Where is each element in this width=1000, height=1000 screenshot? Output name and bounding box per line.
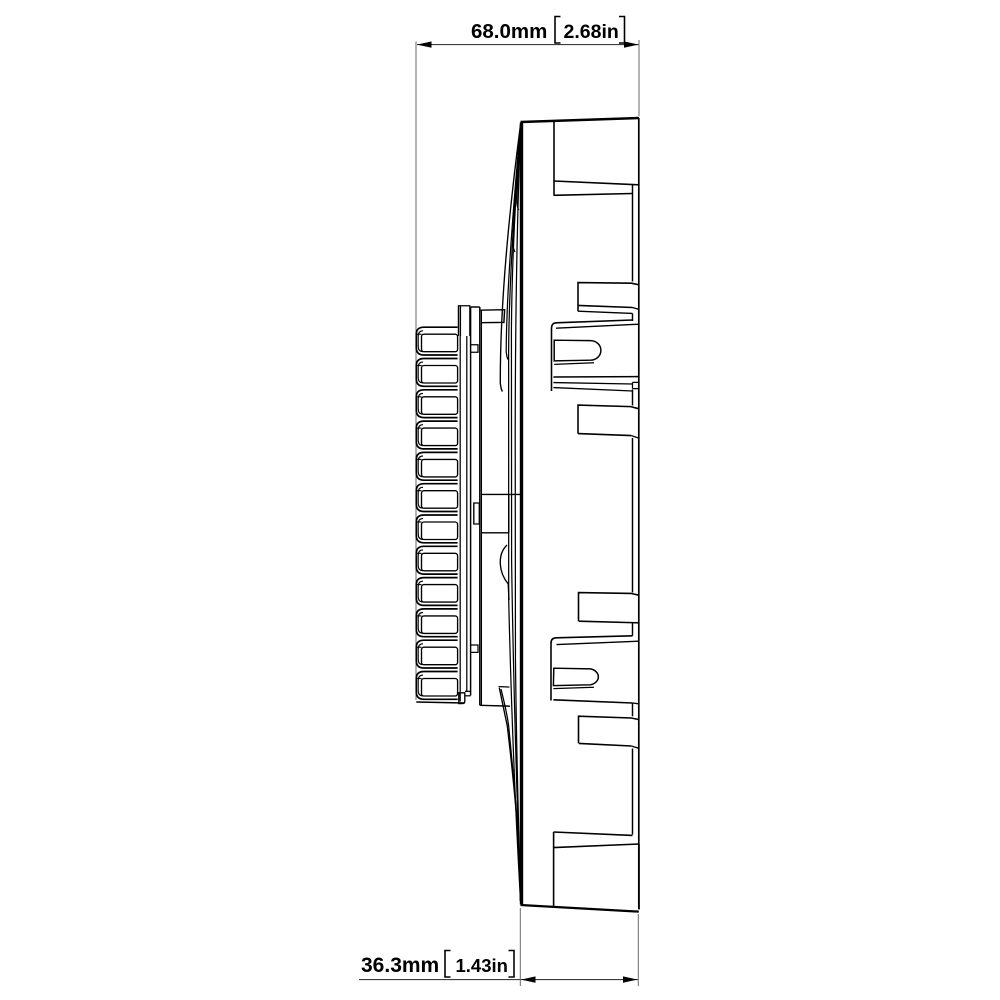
svg-text:2.68in: 2.68in: [564, 21, 619, 43]
svg-text:36.3mm: 36.3mm: [361, 954, 439, 977]
svg-text:1.43in: 1.43in: [456, 955, 508, 976]
svg-text:68.0mm: 68.0mm: [471, 20, 547, 43]
